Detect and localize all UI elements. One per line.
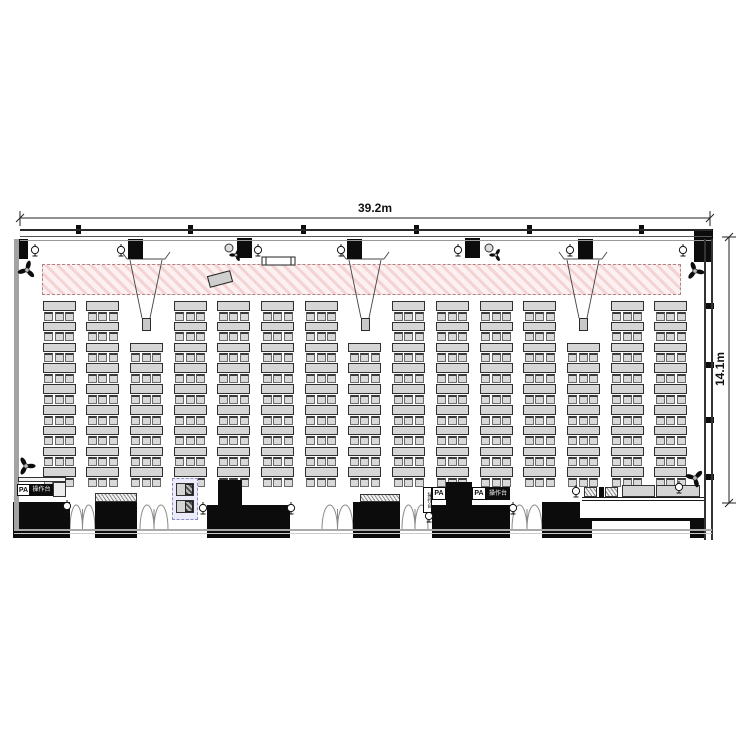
speaker-icon <box>509 502 516 514</box>
speaker-icon <box>572 485 579 497</box>
speaker-icon <box>679 244 686 256</box>
speaker-icon <box>199 502 206 514</box>
camera-icon <box>225 244 233 252</box>
pa-label-mid-1: PA <box>432 487 446 500</box>
speaker-icon <box>337 244 344 256</box>
speaker-icon <box>454 244 461 256</box>
speaker-icon <box>31 244 38 256</box>
speaker-icon <box>566 244 573 256</box>
fan-icon <box>16 258 39 279</box>
stage-bench <box>262 257 295 265</box>
floor-plan: 39.2m 14.1m PA 操作台 PA PA 操作台 操作台 <box>0 0 750 750</box>
speaker-icon <box>254 244 261 256</box>
console-label-left: 操作台 <box>30 484 53 496</box>
stage-prop-table <box>207 271 232 288</box>
console-label-mid: 操作台 <box>486 487 510 500</box>
top-dimension-label: 39.2m <box>325 201 425 215</box>
right-dimension-label: 14.1m <box>713 348 727 390</box>
speaker-icon <box>675 481 682 493</box>
fan-icon <box>684 465 709 490</box>
camera-icon <box>485 244 493 252</box>
console-label-vertical: 操作台 <box>423 487 432 513</box>
pa-label-left: PA <box>17 484 30 496</box>
pa-label-mid-2: PA <box>472 487 486 500</box>
symbols-layer <box>0 0 750 750</box>
fan-icon <box>687 261 706 282</box>
speaker-icon <box>63 500 70 512</box>
speaker-icon <box>117 244 124 256</box>
speaker-icon <box>287 502 294 514</box>
fan-icon <box>13 453 38 477</box>
